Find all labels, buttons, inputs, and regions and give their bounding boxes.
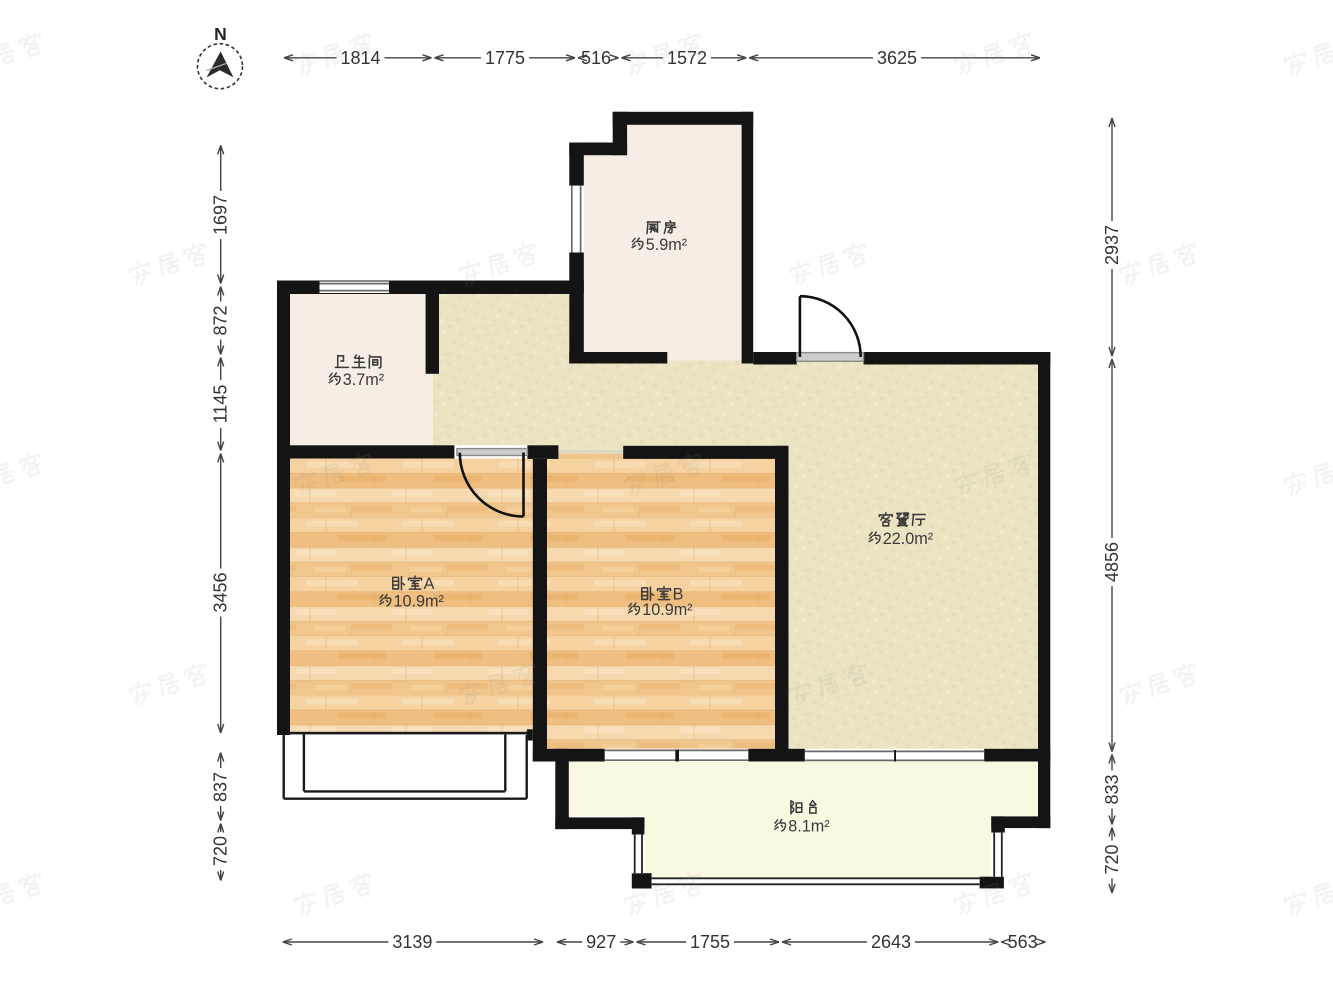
svg-text:10.9m²: 10.9m² bbox=[642, 601, 693, 619]
svg-text:2937: 2937 bbox=[1102, 225, 1122, 265]
svg-text:833: 833 bbox=[1102, 774, 1122, 804]
svg-text:837: 837 bbox=[211, 772, 231, 802]
svg-text:N: N bbox=[214, 24, 227, 44]
svg-text:720: 720 bbox=[1102, 844, 1122, 874]
svg-text:927: 927 bbox=[586, 932, 616, 952]
svg-text:8.1m²: 8.1m² bbox=[788, 818, 830, 836]
svg-text:1775: 1775 bbox=[485, 48, 525, 68]
svg-text:4856: 4856 bbox=[1102, 542, 1122, 582]
svg-text:3625: 3625 bbox=[877, 48, 917, 68]
svg-text:5.9m²: 5.9m² bbox=[646, 236, 688, 254]
svg-text:22.0m²: 22.0m² bbox=[883, 530, 934, 548]
svg-text:516: 516 bbox=[581, 48, 611, 68]
svg-text:563: 563 bbox=[1008, 932, 1038, 952]
svg-text:872: 872 bbox=[211, 305, 231, 335]
svg-text:3456: 3456 bbox=[211, 572, 231, 612]
svg-text:3139: 3139 bbox=[392, 932, 432, 952]
svg-text:1697: 1697 bbox=[211, 195, 231, 235]
svg-text:1145: 1145 bbox=[211, 385, 231, 424]
svg-text:2643: 2643 bbox=[871, 932, 911, 952]
svg-text:3.7m²: 3.7m² bbox=[343, 371, 385, 389]
svg-text:A: A bbox=[424, 575, 435, 593]
svg-text:10.9m²: 10.9m² bbox=[394, 593, 445, 611]
svg-text:1755: 1755 bbox=[690, 932, 730, 952]
svg-text:720: 720 bbox=[211, 836, 231, 866]
